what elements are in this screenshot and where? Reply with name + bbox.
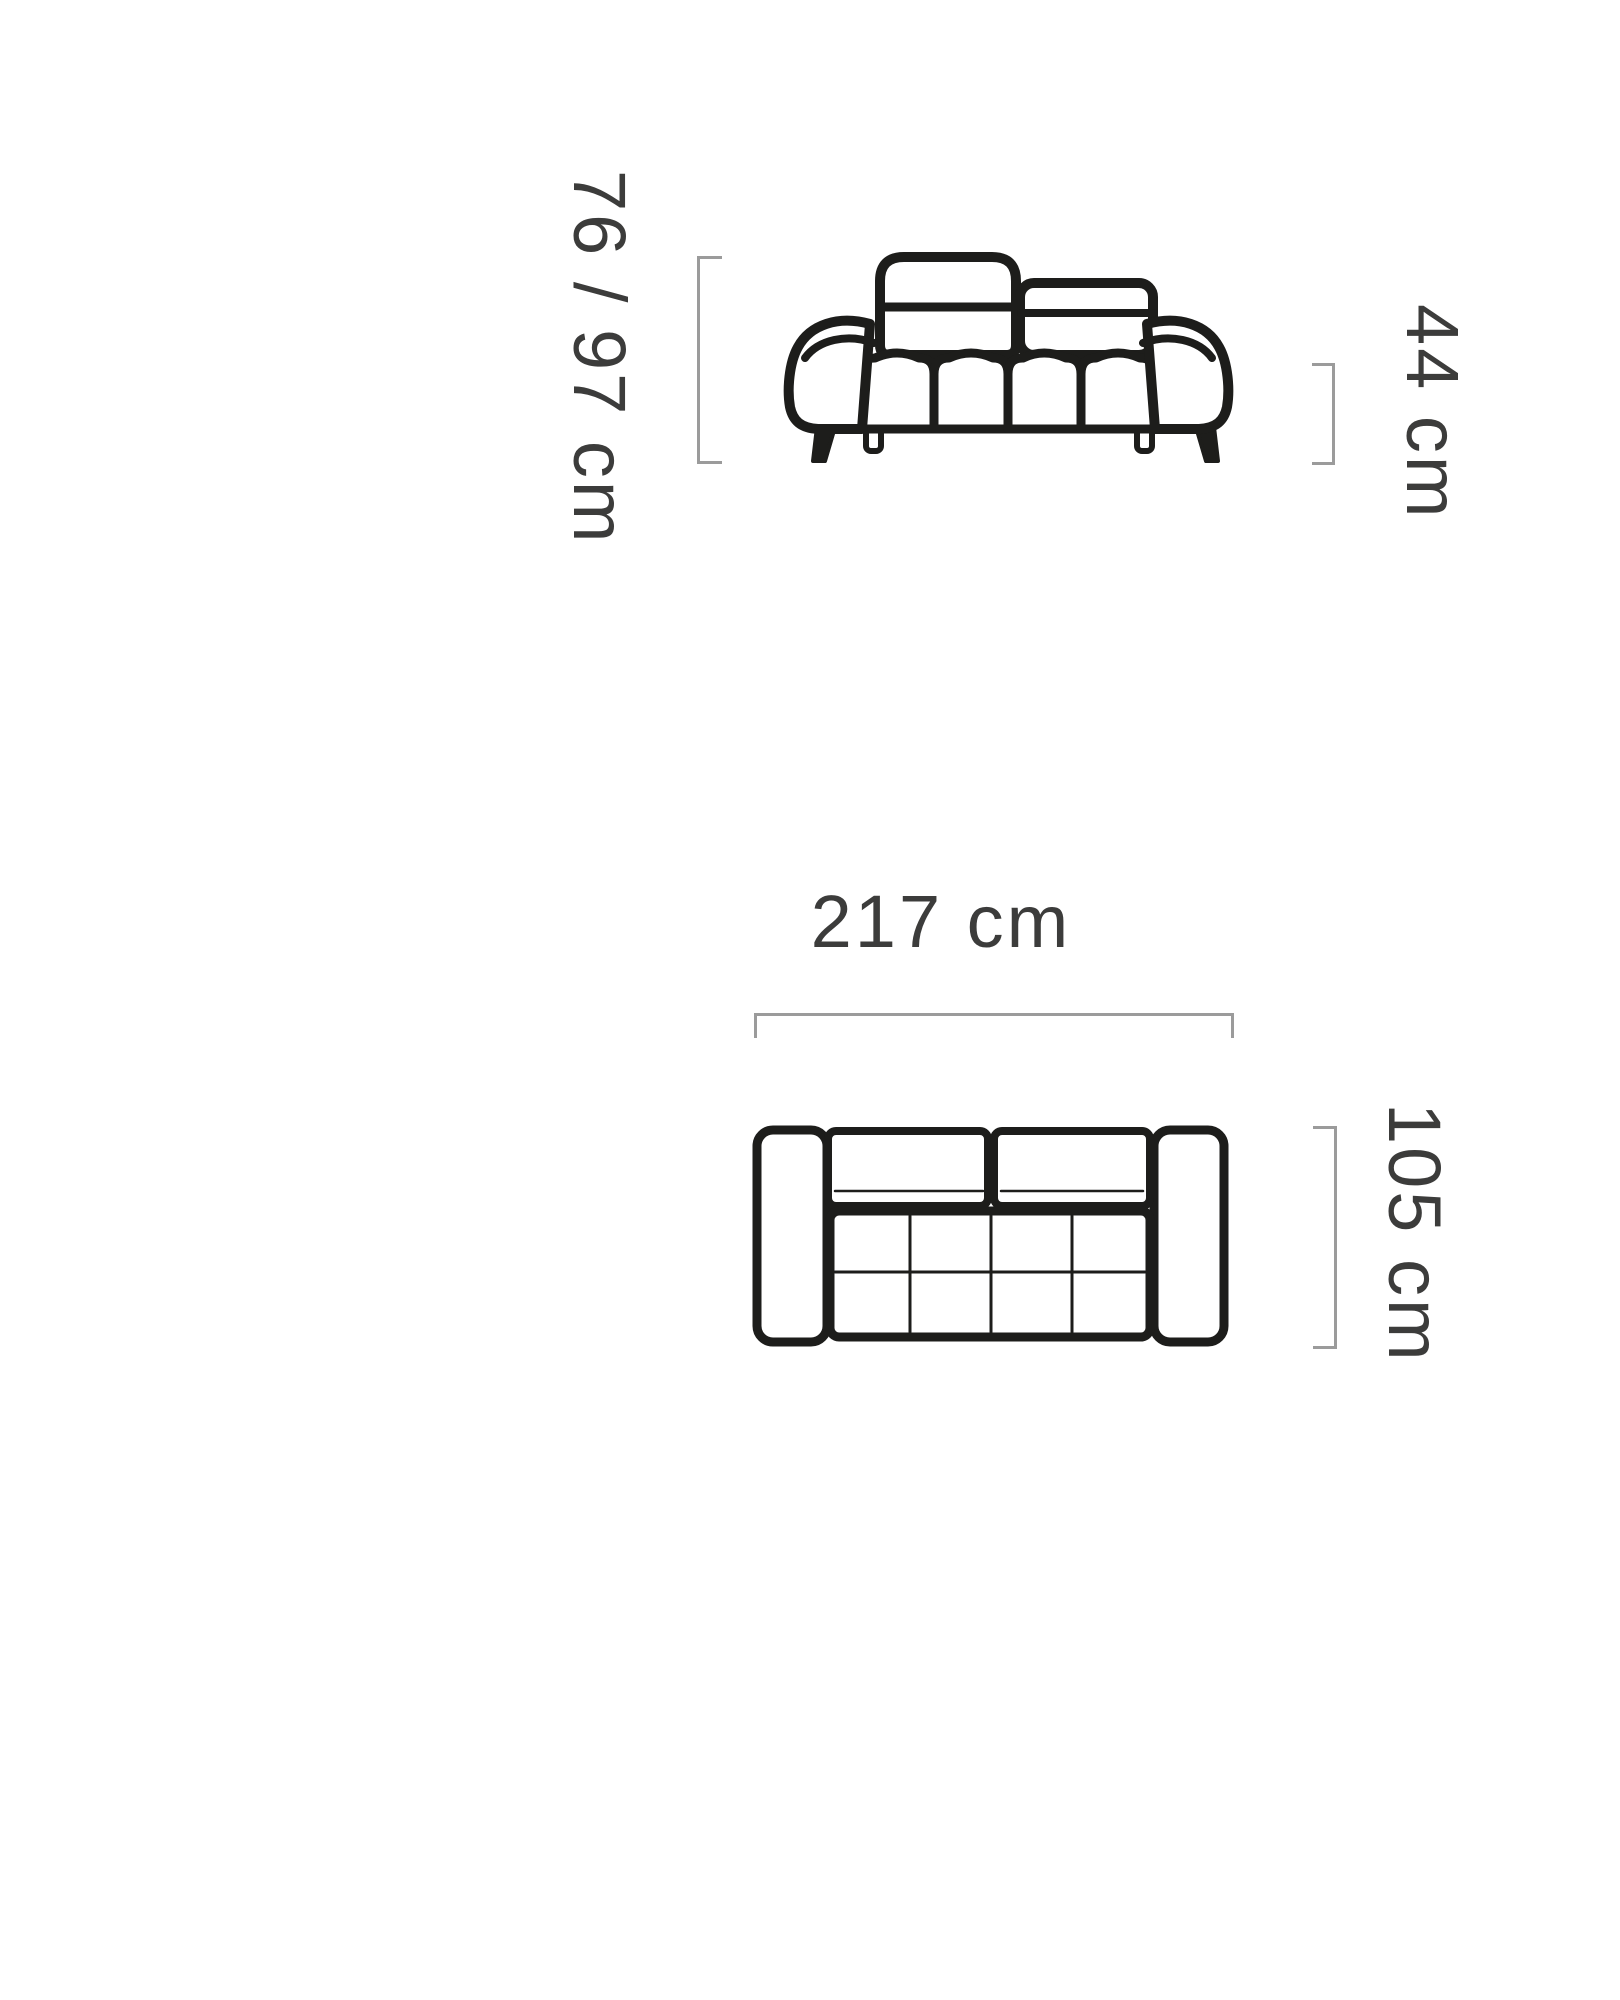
top-width-dimension-line	[754, 1013, 1234, 1038]
front-right-headrest	[1020, 283, 1153, 355]
front-height-label: 76 / 97 cm	[557, 170, 642, 546]
front-seat-cushion	[1081, 353, 1155, 429]
sofa-front-view-drawing	[780, 240, 1240, 475]
front-seat-cushion	[1008, 353, 1081, 429]
top-right-arm	[1154, 1130, 1224, 1342]
front-seat-height-label: 44 cm	[1390, 304, 1475, 521]
top-left-arm	[757, 1130, 827, 1342]
front-backrests	[880, 257, 1153, 355]
dimension-diagram: 76 / 97 cm 44 cm 217 cm	[0, 0, 1620, 2000]
front-seat-cushions	[860, 353, 1155, 429]
top-depth-bracket	[1313, 1126, 1337, 1349]
top-depth-label: 105 cm	[1372, 1103, 1457, 1364]
sofa-top-view-drawing	[750, 1118, 1234, 1352]
top-width-label: 217 cm	[791, 879, 1091, 964]
top-backrest-cushions	[828, 1131, 1150, 1206]
top-left-backrest-cushion	[828, 1131, 988, 1206]
front-seat-height-bracket	[1312, 363, 1335, 465]
top-seat	[830, 1211, 1150, 1337]
front-seat-cushion	[934, 353, 1008, 429]
top-right-backrest-cushion	[994, 1131, 1150, 1206]
front-height-bracket	[697, 256, 722, 464]
